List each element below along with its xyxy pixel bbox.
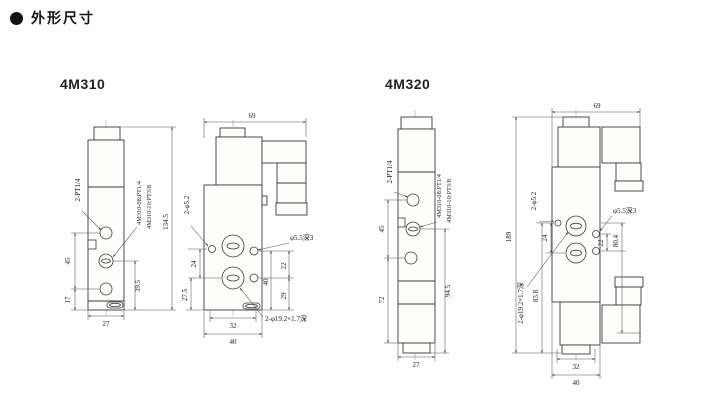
connector-neck-top [616,163,641,181]
connector-block-top [602,127,640,163]
mounting-hole [555,220,561,226]
dim-24: 24 [190,260,198,268]
valve-body [398,129,435,343]
dim-17: 17 [64,296,72,304]
solenoid-cap-top [401,117,432,129]
drawing-4m310-front-view: 69 2-φ5.2 24 27.5 φ5.5深3 22 40 29 [181,112,314,346]
dim-80-4: 80.4 [612,234,620,247]
dim-69: 69 [594,102,602,110]
dim-22: 22 [280,262,288,270]
dim-29: 29 [280,292,288,300]
hole-depth-label: φ5.5深3 [613,206,637,215]
port-hole-top [100,227,112,239]
dim-39-5: 39.5 [134,279,142,292]
drawing-4m320-side-view: 2-PT1/4 4M310-08:PT1/4 4M310-10:PT3/8 45… [378,110,453,369]
solenoid-cap-bottom [562,345,590,354]
spec-label-2: 4M310-10:PT3/8 [446,179,453,223]
connector-neck-bottom [616,287,641,305]
mount-holes-label: 2-φ5.2 [530,191,538,210]
cable-gland-bottom [615,277,643,287]
drawing-4m310-side-view: 45 17 39.5 134.5 27 2-PT1/4 4M310-08:PT1… [64,120,176,328]
dim-69: 69 [249,112,257,120]
solenoid-cap-bottom [403,343,430,353]
dim-32: 32 [230,322,238,330]
mount-holes-label: 2-φ5.2 [183,195,191,214]
dim-189: 189 [505,231,513,242]
spec-label-2: 4M310-10:PT3/8 [146,185,153,229]
spec-label-1: 4M310-08:PT1/4 [136,180,143,225]
spec-label-1: 4M310-08:PT1/4 [436,173,443,218]
dim-27: 27 [103,320,111,328]
dim-45: 45 [378,225,386,233]
port-size-label: 2-PT1/4 [74,178,82,201]
solenoid-body-top [558,127,600,167]
dimension-drawings: 45 17 39.5 134.5 27 2-PT1/4 4M310-08:PT1… [0,0,720,403]
pilot-hole-bottom [250,274,258,282]
pilot-hole-bottom [593,248,600,255]
dim-40-right: 40 [262,278,270,286]
side-notch [88,240,96,249]
mounting-hole [209,246,216,253]
port-hole-bottom [405,252,417,264]
solenoid-body-bottom [560,302,600,345]
catalog-page: 外形尺寸 4M310 4M320 [0,0,720,403]
dim-72: 72 [378,296,386,304]
solenoid-cap [220,128,245,137]
port-hole-top [407,194,419,206]
dim-94-5: 94.5 [444,284,452,297]
dim-32: 32 [573,363,581,371]
dim-45: 45 [64,257,72,265]
solenoid-cap [94,127,120,140]
port-hole-bottom [100,283,112,295]
dim-40-bottom: 40 [230,338,238,346]
dim-27: 27 [413,361,421,369]
dim-134-5: 134.5 [162,214,170,230]
dim-22: 22 [597,239,605,247]
dim-40: 40 [573,379,581,387]
hole-depth-label: φ5.5深3 [290,233,314,242]
solenoid-body [216,137,262,185]
dim-83-8: 83.8 [532,289,540,302]
solenoid-cap-top [563,117,589,127]
connector-block [262,141,306,163]
side-notch [398,218,405,227]
port-slot-label: 2-φ19.2×1.7深 [265,314,307,323]
drawing-4m320-front-view: 69 189 2-φ5.2 24 83.8 2-φ19.2×1.7深 φ5.5深… [505,102,643,387]
pilot-hole-top [593,231,600,238]
pilot-hole-top [250,247,258,255]
port-slot-label: 2-φ19.2×1.7深 [516,282,525,324]
dim-27-5: 27.5 [181,288,189,301]
cable-gland-top [615,181,643,191]
cable-gland [276,203,307,215]
connector-block-bottom [602,305,640,343]
port-size-label: 2-PT1/4 [386,160,394,183]
